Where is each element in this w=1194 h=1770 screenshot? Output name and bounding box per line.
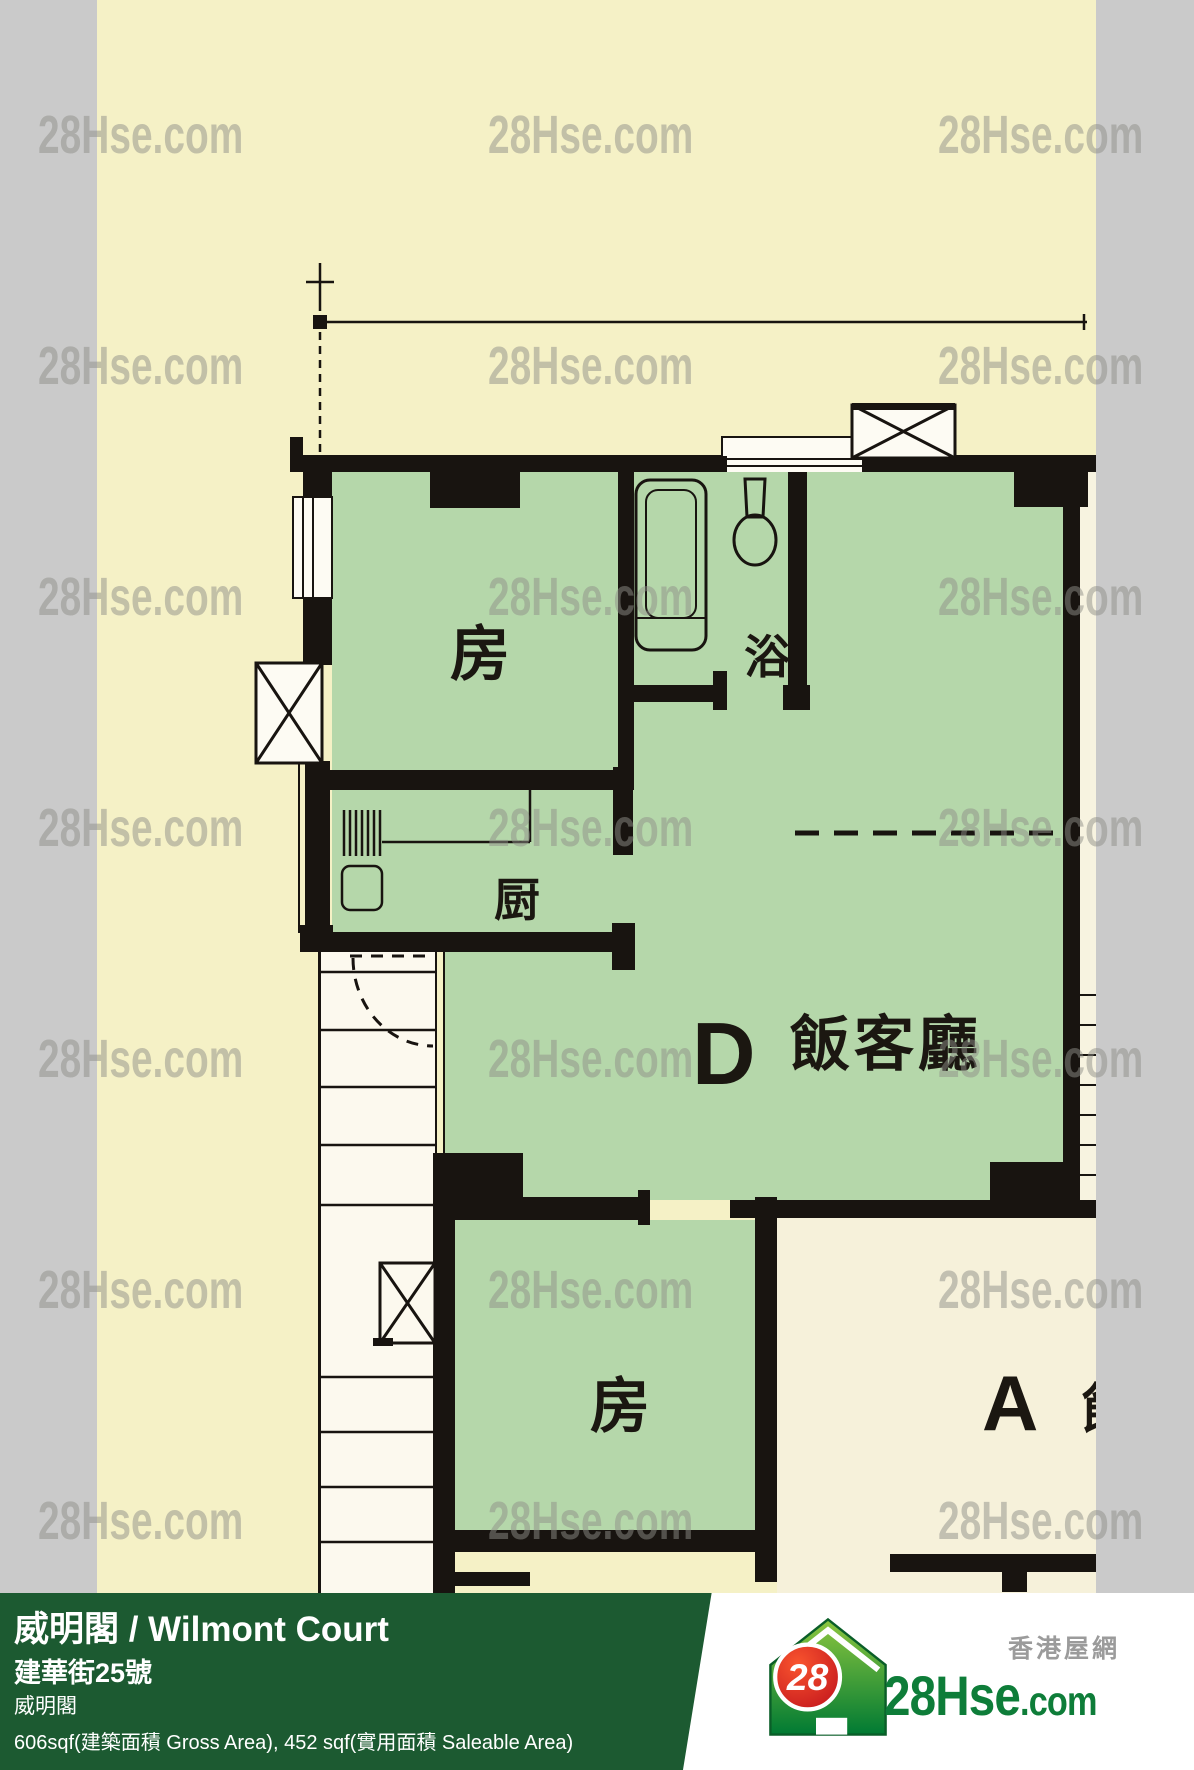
- watermark: 28Hse.com: [38, 1028, 243, 1089]
- watermark: 28Hse.com: [938, 797, 1143, 858]
- bedroom2-label: 房: [590, 1373, 650, 1440]
- top-window: [722, 437, 862, 472]
- area-info: 606sqf(建築面積 Gross Area), 452 sqf(實用面積 Sa…: [14, 1726, 573, 1755]
- estate-name: 威明閣: [14, 1690, 77, 1720]
- watermark: 28Hse.com: [938, 566, 1143, 627]
- unit-d-letter: D: [692, 1004, 756, 1103]
- watermark: 28Hse.com: [938, 1259, 1143, 1320]
- watermark: 28Hse.com: [938, 1490, 1143, 1551]
- watermark: 28Hse.com: [38, 104, 243, 165]
- watermark: 28Hse.com: [38, 566, 243, 627]
- unit-a-letter: A: [982, 1359, 1038, 1447]
- shaft-xbox-left: [256, 663, 322, 763]
- 28hse-brand-text: 28Hse.com: [884, 1663, 1097, 1728]
- bath-label: 浴: [744, 631, 791, 683]
- house-door: [816, 1718, 847, 1735]
- floorplan-page: 房 浴 厨 D 飯客廳 房 A 飯 28Hse.com 28Hse.com 28…: [0, 0, 1194, 1770]
- stove-icon: [344, 810, 380, 856]
- watermark: 28Hse.com: [38, 1259, 243, 1320]
- 28hse-house-icon: 28: [766, 1617, 890, 1737]
- watermark: 28Hse.com: [488, 335, 693, 396]
- brand-suffix: .com: [1020, 1678, 1097, 1724]
- watermark: 28Hse.com: [38, 797, 243, 858]
- watermark: 28Hse.com: [938, 104, 1143, 165]
- watermark: 28Hse.com: [488, 1028, 693, 1089]
- footer-bar: 威明閣 / Wilmont Court 建華街25號 威明閣 606sqf(建築…: [0, 1593, 1194, 1770]
- watermark: 28Hse.com: [38, 1490, 243, 1551]
- watermark: 28Hse.com: [488, 566, 693, 627]
- brand-main: 28Hse: [884, 1664, 1020, 1727]
- shaft-xbox-top: [852, 403, 955, 458]
- floorplan-image: 房 浴 厨 D 飯客廳 房 A 飯 28Hse.com 28Hse.com 28…: [0, 0, 1194, 1593]
- kitchen-label: 厨: [494, 874, 540, 926]
- badge-28: 28: [786, 1656, 829, 1698]
- building-address: 建華街25號: [14, 1651, 152, 1690]
- watermark: 28Hse.com: [488, 1490, 693, 1551]
- watermark: 28Hse.com: [938, 1028, 1143, 1089]
- building-title: 威明閣 / Wilmont Court: [14, 1601, 389, 1652]
- watermark: 28Hse.com: [38, 335, 243, 396]
- watermark: 28Hse.com: [488, 797, 693, 858]
- left-window: [293, 497, 332, 598]
- watermark: 28Hse.com: [488, 1259, 693, 1320]
- watermark: 28Hse.com: [938, 335, 1143, 396]
- shaft-xbox-corridor: [373, 1263, 435, 1346]
- bedroom1-label: 房: [450, 621, 510, 688]
- logo-tagline: 香港屋網: [1008, 1629, 1120, 1665]
- watermark: 28Hse.com: [488, 104, 693, 165]
